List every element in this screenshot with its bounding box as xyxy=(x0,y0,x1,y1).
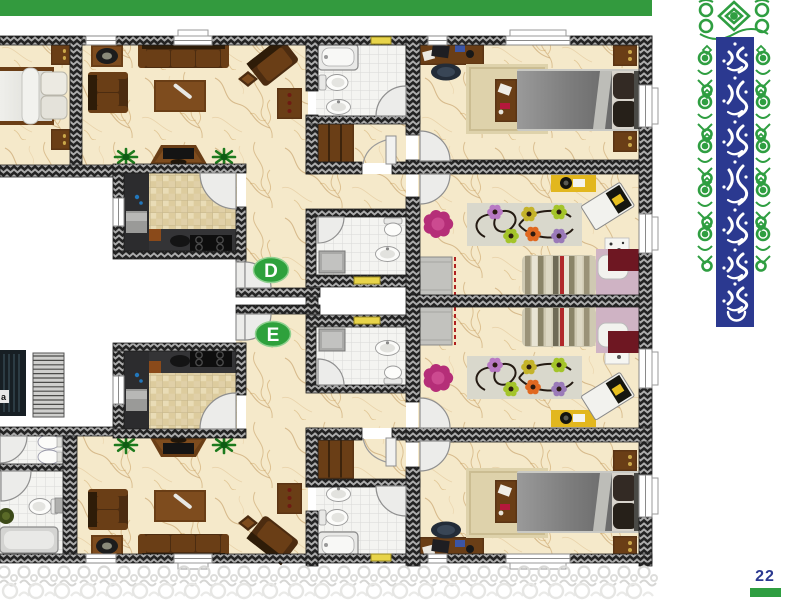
svg-text:22: 22 xyxy=(755,568,775,585)
svg-text:E: E xyxy=(267,325,280,346)
svg-text:D: D xyxy=(264,261,278,282)
